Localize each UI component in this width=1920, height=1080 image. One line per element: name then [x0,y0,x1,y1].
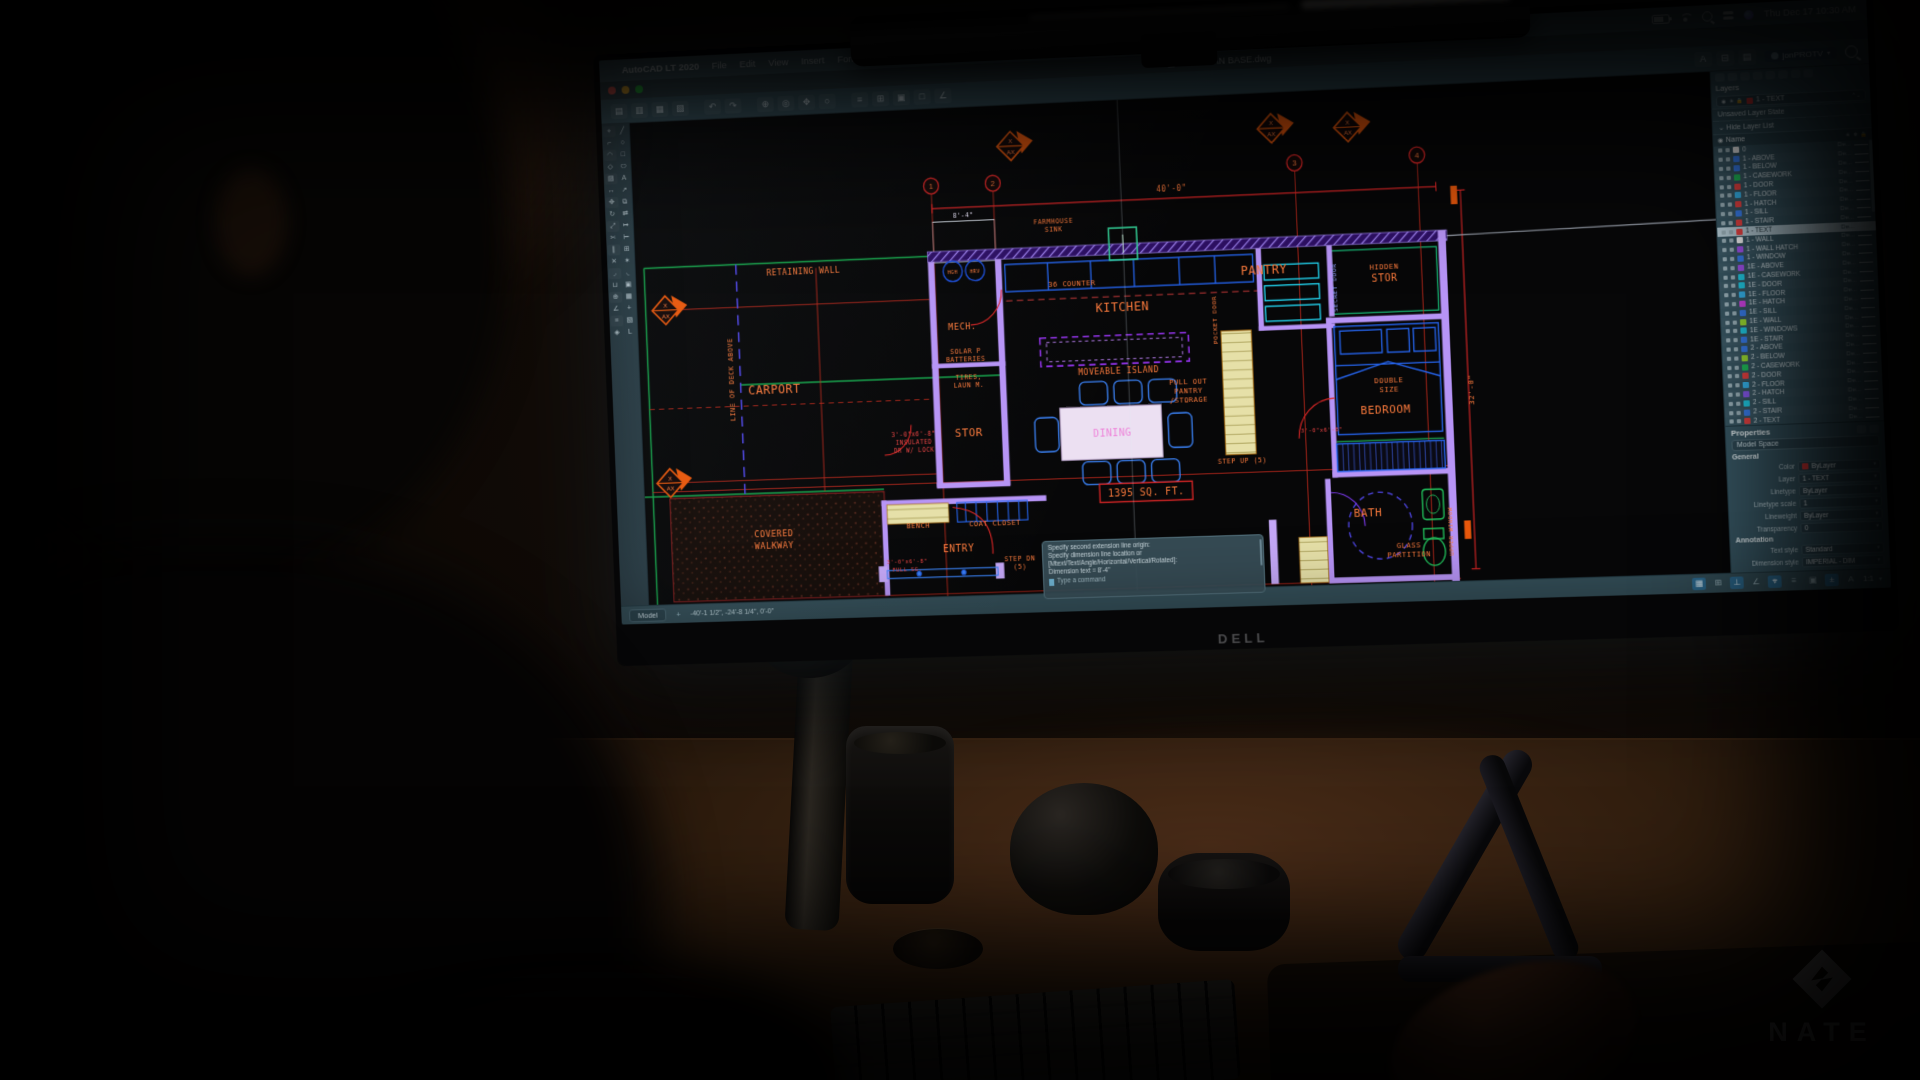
monitor: AutoCAD LT 2020 FileEditViewInsertFormat… [593,0,1899,666]
layer-on-icon[interactable] [1722,239,1726,243]
svg-text:2: 2 [991,179,996,189]
layer-freeze-icon[interactable] [1730,257,1734,261]
polar-mode-icon[interactable]: ∠ [1749,576,1763,589]
layer-lineweight: De... [1845,314,1859,321]
layer-linetype [1862,334,1876,336]
tool-block[interactable]: ▣ [622,279,635,290]
layer-on-icon[interactable] [1728,393,1732,397]
plan-label: BATTERIES [946,355,986,365]
plan-label: BENCH [906,520,930,530]
tool-table[interactable]: ▦ [622,291,635,302]
tablet-stand [1392,742,1612,982]
command-input[interactable]: Type a command [1057,576,1106,585]
chevron-down-icon: ▾ [1877,544,1880,550]
annotate-icon[interactable]: A [1694,51,1712,67]
layer-freeze-icon[interactable] [1727,175,1731,179]
tool-fillet[interactable]: ◞ [608,268,621,279]
eye-icon[interactable]: ◉ [1718,138,1723,144]
layer-linetype [1861,298,1875,300]
layer-freeze-icon[interactable] [1726,166,1730,170]
layer-color-chip[interactable] [1737,255,1744,261]
tool-hatch[interactable]: ▨ [605,173,618,184]
property-value-text: IMPERIAL - DIM [1806,557,1855,566]
chevron-down-icon: ▾ [1875,498,1878,504]
sheet-set-icon[interactable]: ▤ [1738,49,1757,65]
layer-color-chip[interactable] [1743,391,1750,397]
layer-lineweight: De... [1846,341,1860,348]
layer-color-chip[interactable] [1735,210,1742,216]
layer-lineweight: De... [1847,369,1861,376]
property-value-text: ByLayer [1803,487,1828,495]
layer-on-icon[interactable] [1721,230,1725,234]
tool-chamfer[interactable]: ◟ [622,267,635,278]
layer-linetype [1856,189,1870,191]
crosshair [1103,99,1151,590]
svg-text:X: X [663,303,667,309]
svg-text:AX: AX [1007,150,1015,157]
layer-color-chip[interactable] [1736,228,1743,234]
layer-freeze-icon[interactable] [1737,419,1741,423]
property-value-text: ByLayer [1804,511,1829,519]
toolbar-group: ≡⊞▣□∠ [851,87,952,107]
property-label: Color [1740,463,1795,472]
tool-dimension[interactable]: ↔ [605,185,618,196]
property-label: Text style [1743,546,1798,555]
tool-move[interactable]: ✥ [606,197,619,208]
tool-copy[interactable]: ⧉ [619,196,632,207]
layer-freeze-icon[interactable] [1734,356,1738,360]
layer-states-icon[interactable]: ⊞ [872,90,889,106]
isolate-layer-icon[interactable] [1753,71,1763,80]
tool-line[interactable]: ╱ [616,125,629,136]
plan-label: ENTRY [943,543,975,555]
layer-lineweight: De... [1843,278,1857,285]
menu-item-view[interactable]: View [768,57,788,69]
freeze-layer-icon[interactable] [1765,71,1775,80]
layer-color-chip[interactable] [1743,382,1750,388]
layer-color-chip[interactable] [1733,156,1740,162]
open-icon[interactable]: ▥ [631,102,648,118]
layer-on-icon[interactable] [1729,402,1733,406]
blocks-icon[interactable]: □ [913,88,930,104]
layer-freeze-icon[interactable] [1735,365,1739,369]
layer-lineweight: De... [1841,224,1855,231]
layer-freeze-icon[interactable] [1736,401,1740,405]
osnap-mode-icon[interactable]: ⌖ [1768,575,1782,588]
ortho-mode-icon[interactable]: ⊥ [1730,576,1744,589]
layer-freeze-icon[interactable] [1728,203,1732,207]
layer-linetype [1860,280,1874,282]
layer-lineweight: De... [1841,233,1855,240]
tool-select[interactable]: ⌖ [603,126,616,137]
elevation-marker: XAX [652,295,688,325]
layer-color-chip[interactable] [1742,373,1749,379]
tool-osnap[interactable]: ◈ [611,327,624,338]
tool-leader[interactable]: ↗ [618,185,631,196]
layer-freeze-icon[interactable] [1731,275,1735,279]
layer-color-chip[interactable] [1744,418,1751,424]
light-bar-glare [1301,0,1511,9]
property-color-chip [1802,463,1809,469]
bedroom-furniture [1332,323,1446,472]
layer-on-icon[interactable] [1729,411,1733,415]
layer-freeze-icon[interactable] [1733,329,1737,333]
plan-label: SIZE [1379,384,1399,394]
plan-label: CARPORT [748,381,801,397]
annotation-scale[interactable]: 1:1 [1863,575,1874,583]
layer-on-icon[interactable] [1726,347,1730,351]
layer-freeze-icon[interactable] [1728,221,1732,225]
chevron-down-icon: ▾ [1874,486,1877,492]
property-label: Lineweight [1742,512,1797,521]
layer-on-icon[interactable] [1719,167,1723,171]
properties-panel: Properties Model Space General ColorByLa… [1725,420,1890,572]
layer-on-icon[interactable] [1720,185,1724,189]
layer-color-chip[interactable] [1741,355,1748,361]
svg-text:AX: AX [1344,131,1352,138]
layer-linetype [1857,207,1871,209]
save-icon[interactable]: ▦ [651,101,668,117]
layer-lineweight: De... [1847,378,1861,385]
layer-linetype [1856,180,1870,182]
layer-color-chip[interactable] [1733,147,1740,153]
layer-states-icon[interactable] [1740,72,1750,81]
properties-icon[interactable]: ▣ [893,89,910,105]
layer-on-icon[interactable] [1721,212,1725,216]
tool-array[interactable]: ⊞ [621,244,634,255]
plan-label: 1395 SQ. FT. [1108,486,1185,500]
undo-icon[interactable]: ↶ [704,99,721,115]
layer-linetype [1855,171,1869,173]
measure-icon[interactable]: ∠ [934,87,951,103]
layer-freeze-icon[interactable] [1728,212,1732,216]
layer-freeze-icon[interactable] [1735,383,1739,387]
layer-freeze-icon[interactable] [1736,392,1740,396]
plan-label: 36 COUNTER [1048,277,1096,288]
layer-on-icon[interactable] [1725,302,1729,306]
plan-label: 8'-4" [953,212,974,220]
layer-freeze-icon[interactable] [1731,293,1735,297]
layer-linetype [1865,389,1879,391]
layer-color-chip[interactable] [1737,246,1744,252]
svg-text:AX: AX [662,314,670,320]
redo-icon[interactable]: ↷ [724,98,741,114]
tool-group[interactable]: ⊔ [609,280,622,291]
watermark-text: NATE [1742,1017,1902,1048]
plan-label: STOR [955,426,983,440]
plan-label: (5) [1013,562,1026,571]
layer-on-icon[interactable] [1726,338,1730,342]
tool-id-point[interactable]: + [623,303,636,314]
menu-item-insert[interactable]: Insert [801,55,825,67]
tool-insert[interactable]: ⊕ [609,292,622,303]
svg-text:X: X [1345,120,1349,126]
layer-on-icon[interactable] [1724,293,1728,297]
wifi-icon[interactable] [1680,13,1692,22]
layer-color-chip[interactable] [1738,264,1745,270]
svg-text:1: 1 [929,182,934,191]
layer-on-icon[interactable] [1728,374,1732,378]
layers-icon[interactable]: ≡ [851,92,868,108]
model-tab[interactable]: Model [629,608,667,622]
layer-freeze-icon[interactable] [1726,157,1730,161]
property-value-text: 1 - TEXT [1802,474,1829,482]
battery-icon[interactable] [1651,14,1669,24]
layer-freeze-icon[interactable] [1733,338,1737,342]
drawing-canvas[interactable]: 1234XAXXAXXAXXAXXAX RETAINING WALLLINE O… [630,72,1731,605]
menu-item-file[interactable]: File [712,60,727,72]
menu-item-edit[interactable]: Edit [739,58,755,70]
layer-linetype [1860,271,1874,273]
property-value-text: Standard [1805,545,1832,553]
chevron-down-icon: ▾ [1876,523,1879,529]
coordinate-readout: -40'-1 1/2", -24'-8 1/4", 0'-0" [690,608,774,617]
layer-lineweight: De... [1849,414,1863,421]
dynamic-input-mode-icon[interactable]: ± [1825,574,1839,587]
tool-rotate[interactable]: ↻ [606,209,619,220]
layer-color-chip[interactable] [1734,174,1741,180]
tool-ellipse[interactable]: ⬭ [617,161,630,172]
layer-color-chip[interactable] [1743,400,1750,406]
tool-measure-tool[interactable]: ∠ [610,303,623,314]
layer-color-chip[interactable] [1739,301,1746,307]
tool-mirror[interactable]: ⇄ [619,208,632,219]
layer-color-chip[interactable] [1740,328,1747,334]
tool-extend[interactable]: ⊢ [620,232,633,243]
layer-color-chip[interactable] [1740,310,1747,316]
pan-icon[interactable]: ✥ [798,94,815,110]
tool-circle[interactable]: ○ [616,137,629,148]
layer-freeze-icon[interactable] [1730,248,1734,252]
toolbar-search-icon[interactable] [1845,45,1858,58]
chevron-down-icon: ▾ [1874,473,1877,479]
snap-mode-icon[interactable]: ⊞ [1711,577,1725,590]
layer-linetype [1859,253,1873,255]
layer-on-icon[interactable] [1718,149,1722,153]
grid-bubble-2: 2 [985,175,1001,192]
monitor-bezel: AutoCAD LT 2020 FileEditViewInsertFormat… [593,0,1899,666]
plan-label: STEP UP (5) [1218,456,1267,466]
elevation-marker: XAX [996,130,1033,161]
siri-icon[interactable] [1744,10,1754,20]
command-line-window[interactable]: Specify second extension line origin:Spe… [1041,534,1265,599]
layer-settings-icon[interactable] [1803,69,1813,78]
layer-color-chip[interactable] [1738,273,1745,279]
layer-freeze-icon[interactable] [1733,320,1737,324]
tool-ucs[interactable]: L [624,327,637,338]
layer-lineweight: De... [1842,251,1856,258]
tool-polygon[interactable]: ◇ [604,161,617,172]
grid-bubble-1: 1 [923,178,939,195]
plan-label: 3'-0"x6'-8" [1301,427,1343,435]
layer-color-chip[interactable] [1737,237,1744,243]
layer-freeze-icon[interactable] [1734,347,1738,351]
layer-freeze-icon[interactable] [1727,185,1731,189]
watermark: NATE [1742,948,1902,1048]
layer-color-chip[interactable] [1733,165,1740,171]
app-menu[interactable]: AutoCAD LT 2020 [622,61,700,76]
property-label: Linetype [1741,488,1796,497]
tool-match-props[interactable]: ▧ [623,315,636,326]
layer-lineweight: De... [1844,296,1858,303]
tool-layer-tool[interactable]: ≡ [610,315,623,326]
layer-color-chip[interactable] [1735,201,1742,207]
tool-explode[interactable]: ✶ [621,256,634,267]
moveable-island [1040,332,1190,366]
plan-label: SINK [1045,225,1063,234]
layer-linetype [1855,162,1869,164]
layer-on-icon[interactable] [1723,275,1727,279]
layer-on-icon[interactable] [1718,158,1722,162]
light-bar-mount [1140,31,1217,68]
layer-color-chip[interactable] [1742,364,1749,370]
layer-freeze-icon[interactable] [1729,239,1733,243]
plan-label: RETAINING WALL [766,264,840,277]
layer-lineweight: De... [1844,305,1858,312]
layer-on-icon[interactable] [1720,203,1724,207]
account-menu[interactable]: jonPROTV ▾ [1764,47,1837,62]
layer-color-chip[interactable] [1741,337,1748,343]
layer-on-icon[interactable] [1722,248,1726,252]
xref-icon[interactable]: ⊟ [1716,50,1735,66]
plan-label: /STORAGE [1170,394,1209,405]
tool-stretch[interactable]: ↦ [620,220,633,231]
grid-mode-icon[interactable]: ▦ [1692,578,1706,591]
layer-freeze-icon[interactable] [1725,148,1729,152]
plan-label: 3'-0"x6'-8" [887,559,928,566]
merge-layer-icon[interactable] [1791,70,1801,79]
search-icon[interactable] [1702,11,1713,22]
svg-text:X: X [668,476,672,482]
delete-layer-icon[interactable] [1728,73,1738,82]
layer-on-icon[interactable] [1727,365,1731,369]
layer-freeze-icon[interactable] [1732,311,1736,315]
plan-label: COAT CLOSET [969,517,1021,528]
layer-lineweight: De... [1839,169,1853,176]
property-label: Dimension style [1744,559,1799,568]
layer-on-icon[interactable] [1726,329,1730,333]
layer-on-icon[interactable] [1719,176,1723,180]
orbit-icon[interactable]: ○ [819,93,836,109]
layer-on-icon[interactable] [1725,311,1729,315]
tool-scale[interactable]: ⤢ [607,221,620,232]
layer-freeze-icon[interactable] [1727,194,1731,198]
property-value-text: ByLayer [1811,462,1836,470]
elevation-marker: XAX [1333,111,1371,142]
annotation-mode-icon[interactable]: A [1844,573,1858,586]
layer-on-icon[interactable] [1725,320,1729,324]
tool-offset[interactable]: ∥ [607,244,620,255]
property-value[interactable]: IMPERIAL - DIM▾ [1802,555,1885,568]
layer-list: 0De...1 - ABOVEDe...1 - BELOWDe...1 - CA… [1714,140,1884,426]
layer-on-icon[interactable] [1723,266,1727,270]
layer-on-icon[interactable] [1727,356,1731,360]
layer-color-chip[interactable] [1738,282,1745,288]
tool-arc[interactable]: ◠ [604,150,617,161]
layer-linetype [1855,153,1869,155]
svg-text:X: X [1269,121,1273,127]
new-icon[interactable]: ▤ [611,103,628,119]
svg-text:3: 3 [1292,158,1297,168]
layer-lineweight: De... [1846,351,1860,358]
command-scrollbar[interactable] [1259,539,1262,565]
layer-on-icon[interactable] [1721,221,1725,225]
grid-bubble-4: 4 [1409,147,1425,164]
layer-on-icon[interactable] [1728,384,1732,388]
lineweight-mode-icon[interactable]: ▣ [1806,574,1820,587]
property-label: Transparency [1742,525,1797,534]
layer-on-icon[interactable] [1724,284,1728,288]
layer-linetype [1866,416,1880,418]
tool-polyline[interactable]: ⌐ [603,138,616,149]
plan-label: FULL SG. [892,567,922,574]
tool-trim[interactable]: ✂ [607,232,620,243]
command-caret [1049,578,1054,585]
layer-color-chip[interactable] [1736,219,1743,225]
layer-linetype [1862,316,1876,318]
layer-lineweight: De... [1842,242,1856,249]
print-icon[interactable]: ▧ [672,100,689,116]
tool-text[interactable]: A [618,173,631,184]
plan-label: LINE OF DECK ABOVE [727,338,738,421]
right-panel: Layers ◉☀🔒 1 - TEXT ⌃⌄ Unsaved Layer Sta… [1710,64,1891,572]
layer-color-chip[interactable] [1739,292,1746,298]
watermark-logo-icon [1790,948,1854,1010]
new-layer-icon[interactable] [1715,73,1725,82]
tool-rectangle[interactable]: □ [617,149,630,160]
layer-lineweight: De... [1847,360,1861,367]
zoom-extents-icon[interactable]: ⊕ [757,96,774,112]
chevron-down-icon: ▾ [1877,557,1880,563]
layer-freeze-icon[interactable] [1731,284,1735,288]
properties-settings-icon[interactable] [1869,424,1879,433]
plan-label: COVERED [754,529,793,541]
layer-color-chip[interactable] [1744,409,1751,415]
properties-filter-icon[interactable] [1857,424,1867,433]
plan-label: HRV [970,268,980,275]
elevation-marker: XAX [1257,112,1295,143]
layer-lineweight: De... [1839,187,1853,194]
layer-freeze-icon[interactable] [1735,374,1739,378]
screen: AutoCAD LT 2020 FileEditViewInsertFormat… [599,0,1891,625]
otrack-mode-icon[interactable]: ≡ [1787,575,1801,588]
lock-layer-icon[interactable] [1778,70,1788,79]
layer-linetype [1859,262,1873,264]
menubar-clock[interactable]: Thu Dec 17 10:30 AM [1764,4,1856,19]
layer-freeze-icon[interactable] [1736,410,1740,414]
current-layer-color-chip [1747,97,1754,103]
desk-speaker-dome [1010,783,1158,915]
layer-on-icon[interactable] [1729,420,1733,424]
plan-label: MECH. [948,322,977,333]
zoom-window-icon[interactable]: ◎ [777,95,794,111]
properties-title: Properties [1731,427,1770,438]
plan-label: STOR [1371,272,1397,285]
layer-freeze-icon[interactable] [1732,302,1736,306]
control-center-icon[interactable] [1723,11,1734,20]
new-layout-tab[interactable]: + [676,609,681,618]
layer-lineweight: De... [1846,332,1860,339]
layer-freeze-icon[interactable] [1729,230,1733,234]
layer-on-icon[interactable] [1723,257,1727,261]
layer-freeze-icon[interactable] [1730,266,1734,270]
layer-color-chip[interactable] [1740,319,1747,325]
layer-on-icon[interactable] [1720,194,1724,198]
tool-erase[interactable]: ✕ [608,256,621,267]
layer-color-chip[interactable] [1734,183,1741,189]
layer-color-chip[interactable] [1741,346,1748,352]
layer-color-chip[interactable] [1735,192,1742,198]
